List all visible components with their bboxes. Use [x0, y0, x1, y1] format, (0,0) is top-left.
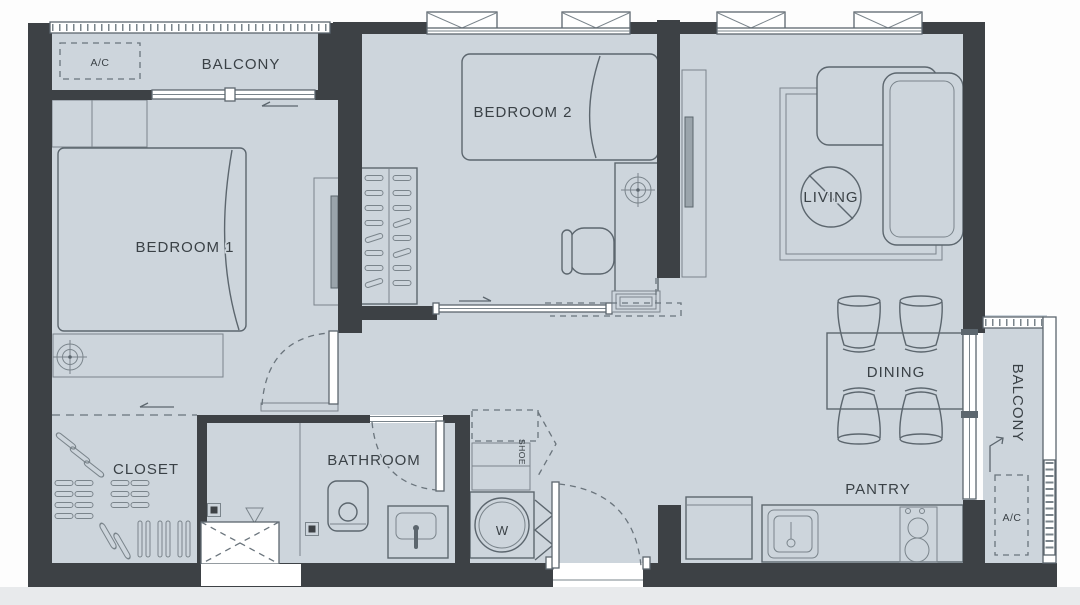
room-label-bedroom-1: BEDROOM 1 — [135, 239, 234, 256]
room-label-pantry: PANTRY — [845, 481, 910, 498]
room-label-bedroom-2: BEDROOM 2 — [473, 104, 572, 121]
bathroom-door-leaf — [436, 421, 444, 491]
ac-label-top: A/C — [90, 57, 109, 69]
ac-label-right: A/C — [1002, 512, 1021, 524]
page-bottom-strip — [0, 587, 1080, 605]
refrigerator — [686, 497, 752, 559]
room-label-bathroom: BATHROOM — [327, 452, 421, 469]
sofa — [883, 73, 963, 245]
tv-icon — [685, 117, 693, 207]
kitchen-furniture — [686, 497, 963, 562]
washer-label: W — [496, 523, 509, 538]
room-label-closet: CLOSET — [113, 461, 179, 478]
bedroom-door-threshold — [261, 403, 338, 411]
bedroom-door-leaf — [329, 331, 338, 404]
room-label-living: LIVING — [803, 189, 858, 206]
entrance-door-leaf — [552, 482, 559, 568]
desk-chair — [570, 228, 614, 274]
room-label-balcony-right: BALCONY — [1009, 364, 1026, 443]
room-label-dining: DINING — [867, 364, 926, 381]
floor-plan-page: BALCONY A/C BEDROOM 2 BEDROOM 1 LIVING D… — [0, 0, 1080, 605]
room-label-balcony-top: BALCONY — [202, 56, 281, 73]
floor-plan: BALCONY A/C BEDROOM 2 BEDROOM 1 LIVING D… — [0, 0, 1080, 605]
shoe-cabinet-label: SHOE — [517, 439, 527, 465]
